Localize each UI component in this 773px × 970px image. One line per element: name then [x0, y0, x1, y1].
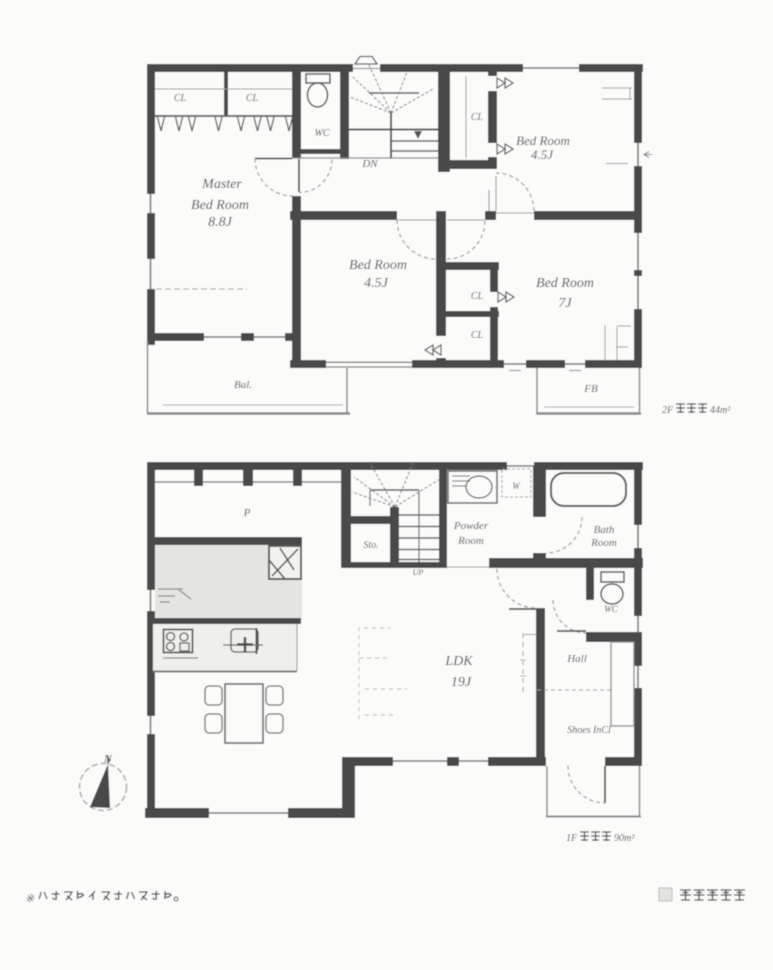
svg-text:1F: 1F: [566, 833, 578, 844]
svg-text:4.5J: 4.5J: [364, 276, 389, 291]
svg-text:FB: FB: [583, 383, 598, 395]
svg-text:8.8J: 8.8J: [208, 215, 233, 230]
svg-text:4.5J: 4.5J: [531, 147, 554, 162]
svg-text:7J: 7J: [558, 296, 572, 311]
svg-text:LDK: LDK: [444, 654, 473, 669]
svg-text:2F: 2F: [662, 405, 674, 416]
svg-text:Room: Room: [590, 537, 617, 549]
svg-text:Bath: Bath: [594, 524, 615, 536]
svg-text:CL: CL: [246, 93, 259, 104]
svg-text:WC: WC: [604, 604, 618, 614]
svg-text:Bed Room: Bed Room: [191, 198, 249, 213]
svg-text:UP: UP: [413, 568, 424, 577]
svg-text:DN: DN: [361, 158, 378, 170]
svg-text:CL: CL: [471, 112, 484, 123]
svg-text:P: P: [243, 507, 251, 519]
svg-text:19J: 19J: [451, 675, 472, 690]
svg-text:Shoes InCl: Shoes InCl: [567, 725, 611, 736]
svg-text:Sto.: Sto.: [363, 540, 378, 551]
svg-text:Powder: Powder: [453, 520, 489, 532]
svg-text:90m²: 90m²: [614, 833, 635, 844]
svg-text:Room: Room: [457, 535, 484, 547]
svg-text:CL: CL: [174, 93, 187, 104]
svg-text:Hall: Hall: [566, 653, 587, 665]
svg-text:Bal.: Bal.: [234, 379, 252, 391]
svg-text:N: N: [103, 753, 113, 765]
svg-text:Bed Room: Bed Room: [349, 258, 407, 273]
svg-text:CL: CL: [471, 330, 484, 341]
svg-text:Bed Room: Bed Room: [536, 276, 594, 291]
svg-text:CL: CL: [471, 291, 484, 302]
svg-text:44m²: 44m²: [710, 405, 731, 416]
svg-text:Bed Room: Bed Room: [516, 133, 570, 148]
svg-text:WC: WC: [315, 128, 330, 139]
svg-text:※: ※: [25, 893, 35, 905]
svg-text:Master: Master: [201, 177, 242, 192]
